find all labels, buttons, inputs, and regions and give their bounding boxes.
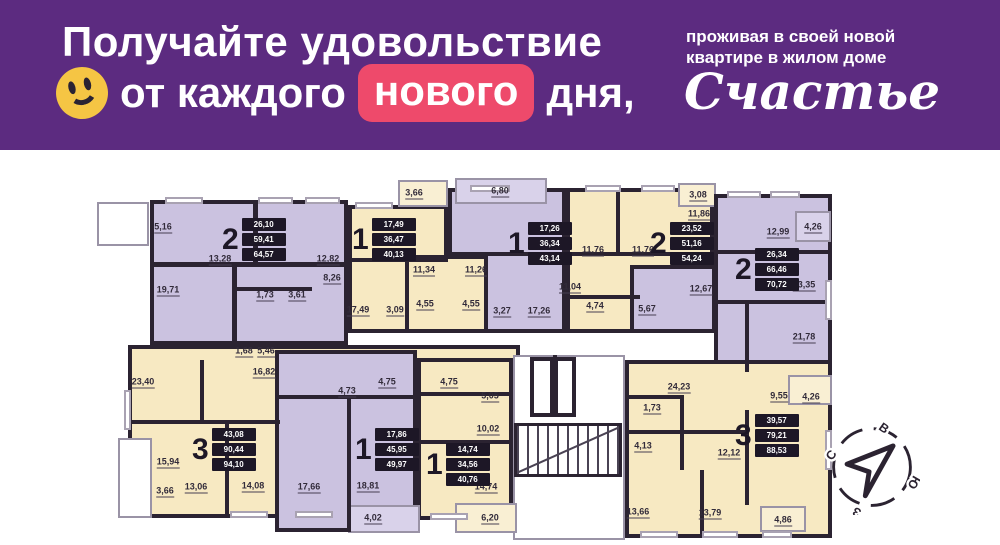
window-mark [230, 511, 268, 518]
room-area-label: 4,02 [364, 514, 382, 525]
room-area-label: 6,80 [491, 187, 509, 198]
unit-rooms-count: 3 [192, 435, 209, 465]
window-mark [355, 202, 393, 209]
unit-area-value: 36,47 [372, 233, 416, 246]
room-area-label: 3,27 [493, 307, 511, 318]
unit-area-value: 17,49 [372, 218, 416, 231]
unit-area-value: 26,34 [755, 248, 799, 261]
unit-rooms-count: 1 [352, 225, 369, 255]
unit-area-value: 40,13 [372, 248, 416, 261]
room-area-label: 5,05 [481, 392, 499, 403]
room-area-label: 4,75 [378, 378, 396, 389]
wall-segment [745, 300, 749, 372]
room-area-label: 4,55 [462, 300, 480, 311]
room-area-label: 12,99 [767, 228, 790, 239]
unit-area-value: 45,95 [375, 443, 419, 456]
window-mark [585, 185, 621, 192]
unit-areas: 14,7434,5640,76 [446, 443, 490, 486]
room-area-label: 17,66 [298, 483, 321, 494]
unit-area-value: 34,56 [446, 458, 490, 471]
unit-area-value: 39,57 [755, 414, 799, 427]
room-area-label: 11,26 [465, 266, 487, 277]
poster: Получайте удовольствие от каждого нового… [0, 0, 1000, 545]
window-mark [305, 197, 340, 204]
room-area-label: 3,61 [288, 291, 306, 302]
window-mark [702, 531, 738, 538]
window-mark [640, 531, 678, 538]
room-area-label: 4,26 [802, 393, 820, 404]
room-area-label: 12,82 [317, 255, 340, 266]
room-area-label: 15,94 [157, 458, 180, 469]
staircase-rail [517, 427, 618, 474]
room-area-label: 4,13 [634, 442, 652, 453]
apartment-block [630, 265, 716, 333]
room-area-label: 10,02 [477, 425, 500, 436]
window-mark [641, 185, 675, 192]
wall-segment [700, 470, 704, 538]
unit-area-value: 59,41 [242, 233, 286, 246]
room-area-label: 5,16 [154, 223, 172, 234]
unit-area-value: 17,26 [528, 222, 572, 235]
unit-area-value: 51,16 [670, 237, 714, 250]
room-area-label: 3,66 [156, 487, 174, 498]
apartment-block [348, 505, 420, 533]
room-area-label: 6,20 [481, 514, 499, 525]
room-area-label: 18,81 [357, 482, 380, 493]
room-area-label: 13,66 [627, 508, 650, 519]
unit-areas: 17,8645,9549,97 [375, 428, 419, 471]
unit-info: 343,0890,4494,10 [192, 428, 256, 471]
unit-rooms-count: 2 [650, 229, 667, 259]
room-area-label: 11,04 [559, 283, 581, 294]
unit-area-value: 88,53 [755, 444, 799, 457]
wall-segment [232, 262, 237, 345]
unit-rooms-count: 1 [508, 229, 525, 259]
room-area-label: 4,75 [440, 378, 458, 389]
compass-rose: СВЮЗ [824, 419, 920, 515]
unit-area-value: 43,08 [212, 428, 256, 441]
unit-area-value: 64,57 [242, 248, 286, 261]
room-area-label: 3,08 [689, 191, 707, 202]
unit-rooms-count: 2 [222, 225, 239, 255]
wall-segment [200, 360, 204, 420]
window-mark [762, 531, 792, 538]
window-mark [124, 390, 131, 430]
room-area-label: 1,68 [235, 347, 253, 358]
room-area-label: 4,73 [338, 387, 356, 398]
elevator-shaft [554, 357, 576, 417]
wall-segment [625, 395, 680, 399]
room-area-label: 11,86 [688, 210, 710, 221]
room-area-label: 5,67 [638, 305, 656, 316]
apartment-block [97, 202, 149, 246]
window-mark [825, 280, 832, 320]
room-area-label: 23,40 [132, 378, 155, 389]
room-area-label: 11,76 [582, 246, 604, 257]
wall-segment [566, 295, 640, 299]
room-area-label: 13,79 [699, 509, 722, 520]
apartment-block [118, 438, 152, 518]
unit-area-value: 36,34 [528, 237, 572, 250]
room-area-label: 12,67 [690, 285, 713, 296]
staircase [514, 423, 622, 477]
unit-areas: 43,0890,4494,10 [212, 428, 256, 471]
room-area-label: 17,49 [347, 306, 370, 317]
room-area-label: 1,73 [256, 291, 274, 302]
window-mark [770, 191, 800, 198]
unit-areas: 39,5779,2188,53 [755, 414, 799, 457]
room-area-label: 24,23 [668, 383, 691, 394]
room-area-label: 21,78 [793, 333, 816, 344]
wall-segment [714, 300, 832, 304]
room-area-label: 3,09 [386, 306, 404, 317]
room-area-label: 5,46 [257, 347, 275, 358]
window-mark [430, 513, 468, 520]
unit-area-value: 54,24 [670, 252, 714, 265]
room-area-label: 11,34 [413, 266, 435, 277]
room-area-label: 4,26 [804, 223, 822, 234]
room-area-label: 16,82 [253, 368, 276, 379]
wall-segment [680, 395, 684, 470]
unit-rooms-count: 1 [355, 435, 372, 465]
room-area-label: 13,06 [185, 483, 208, 494]
window-mark [258, 197, 293, 204]
room-area-label: 4,86 [774, 516, 792, 527]
unit-area-value: 66,46 [755, 263, 799, 276]
unit-areas: 23,5251,1654,24 [670, 222, 714, 265]
room-area-label: 1,73 [643, 404, 661, 415]
unit-rooms-count: 1 [426, 450, 443, 480]
wall-segment [128, 420, 280, 424]
unit-area-value: 40,76 [446, 473, 490, 486]
svg-text:З: З [850, 504, 863, 515]
wall-segment [625, 430, 745, 434]
unit-area-value: 70,72 [755, 278, 799, 291]
wall-segment [347, 395, 351, 532]
unit-info: 339,5779,2188,53 [735, 414, 799, 457]
room-area-label: 9,55 [770, 392, 788, 403]
unit-info: 117,2636,3443,14 [508, 222, 572, 265]
elevator-shaft [530, 357, 554, 417]
unit-area-value: 23,52 [670, 222, 714, 235]
wall-segment [616, 188, 620, 252]
room-area-label: 3,66 [405, 189, 423, 200]
unit-area-value: 43,14 [528, 252, 572, 265]
svg-text:Ю: Ю [905, 473, 920, 491]
unit-area-value: 94,10 [212, 458, 256, 471]
unit-rooms-count: 3 [735, 421, 752, 451]
unit-areas: 26,3466,4670,72 [755, 248, 799, 291]
unit-info: 226,1059,4164,57 [222, 218, 286, 261]
unit-areas: 17,4936,4740,13 [372, 218, 416, 261]
room-area-label: 17,26 [528, 307, 551, 318]
unit-area-value: 49,97 [375, 458, 419, 471]
apartment-block [417, 358, 513, 520]
svg-text:С: С [824, 447, 840, 462]
unit-info: 114,7434,5640,76 [426, 443, 490, 486]
unit-info: 223,5251,1654,24 [650, 222, 714, 265]
window-mark [727, 191, 761, 198]
window-mark [165, 197, 203, 204]
unit-rooms-count: 2 [735, 255, 752, 285]
unit-areas: 26,1059,4164,57 [242, 218, 286, 261]
unit-area-value: 90,44 [212, 443, 256, 456]
room-area-label: 14,08 [242, 482, 265, 493]
room-area-label: 19,71 [157, 286, 180, 297]
unit-area-value: 79,21 [755, 429, 799, 442]
unit-info: 117,4936,4740,13 [352, 218, 416, 261]
room-area-label: 8,26 [323, 274, 341, 285]
unit-areas: 17,2636,3443,14 [528, 222, 572, 265]
unit-area-value: 14,74 [446, 443, 490, 456]
unit-info: 226,3466,4670,72 [735, 248, 799, 291]
window-mark [295, 511, 333, 518]
room-area-label: 4,74 [586, 302, 604, 313]
unit-area-value: 17,86 [375, 428, 419, 441]
unit-area-value: 26,10 [242, 218, 286, 231]
room-area-label: 4,55 [416, 300, 434, 311]
unit-info: 117,8645,9549,97 [355, 428, 419, 471]
